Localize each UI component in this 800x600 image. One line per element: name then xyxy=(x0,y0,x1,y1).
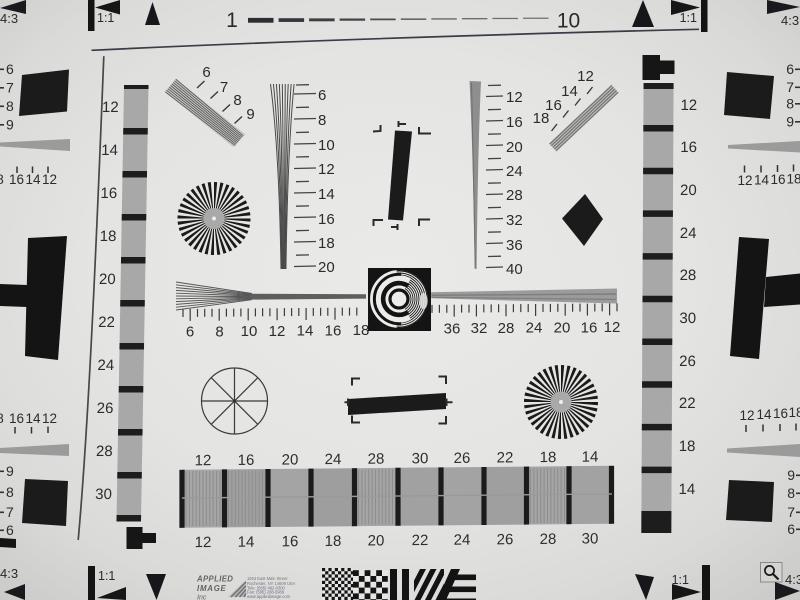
svg-text:IMAGE: IMAGE xyxy=(197,584,227,593)
svg-text:30: 30 xyxy=(582,530,599,547)
svg-text:8: 8 xyxy=(0,411,4,426)
svg-text:1:1: 1:1 xyxy=(97,11,114,25)
svg-text:8: 8 xyxy=(233,92,241,109)
svg-text:24: 24 xyxy=(325,451,342,468)
svg-text:16: 16 xyxy=(770,172,785,187)
svg-text:10: 10 xyxy=(241,323,258,340)
svg-text:16: 16 xyxy=(9,172,24,187)
svg-text:4:3: 4:3 xyxy=(781,13,799,28)
svg-text:12: 12 xyxy=(42,411,57,426)
svg-text:12: 12 xyxy=(739,408,754,423)
svg-text:20: 20 xyxy=(368,532,385,549)
svg-text:1: 1 xyxy=(226,9,238,32)
svg-text:12: 12 xyxy=(318,161,335,178)
svg-text:24: 24 xyxy=(506,163,523,180)
svg-text:6: 6 xyxy=(186,324,194,341)
svg-text:12: 12 xyxy=(577,68,594,85)
svg-text:18: 18 xyxy=(353,322,370,339)
svg-text:18: 18 xyxy=(540,449,557,466)
svg-text:12: 12 xyxy=(604,319,621,336)
svg-text:28: 28 xyxy=(540,531,557,548)
svg-text:16: 16 xyxy=(773,406,788,421)
svg-text:16: 16 xyxy=(506,114,523,131)
svg-text:26: 26 xyxy=(454,450,471,467)
svg-text:10: 10 xyxy=(318,137,335,154)
svg-text:www.appliedimage.com: www.appliedimage.com xyxy=(247,594,291,599)
svg-text:12: 12 xyxy=(269,323,286,340)
svg-text:Inc: Inc xyxy=(197,595,207,600)
svg-text:30: 30 xyxy=(95,486,112,503)
svg-text:6: 6 xyxy=(786,61,794,77)
svg-text:APPLIED: APPLIED xyxy=(196,575,233,584)
svg-text:16: 16 xyxy=(9,411,24,426)
svg-text:6: 6 xyxy=(6,61,14,77)
svg-text:26: 26 xyxy=(679,353,696,370)
svg-text:24: 24 xyxy=(454,532,471,549)
svg-text:6: 6 xyxy=(787,521,795,537)
svg-text:20: 20 xyxy=(554,320,571,337)
svg-text:22: 22 xyxy=(497,449,514,466)
svg-text:9: 9 xyxy=(6,117,14,133)
svg-text:10: 10 xyxy=(557,10,580,33)
svg-text:7: 7 xyxy=(786,79,794,95)
svg-text:6: 6 xyxy=(318,87,326,104)
svg-text:8: 8 xyxy=(318,112,326,129)
svg-text:1:1: 1:1 xyxy=(98,569,115,583)
svg-text:7: 7 xyxy=(6,504,14,520)
svg-text:8: 8 xyxy=(0,172,4,187)
svg-text:28: 28 xyxy=(680,267,697,284)
svg-text:14: 14 xyxy=(318,186,335,203)
svg-text:16: 16 xyxy=(318,211,335,228)
svg-text:4:3: 4:3 xyxy=(0,566,18,581)
svg-text:12: 12 xyxy=(506,89,523,106)
svg-text:14: 14 xyxy=(101,142,118,159)
svg-text:30: 30 xyxy=(412,450,429,467)
svg-text:14: 14 xyxy=(297,323,314,340)
svg-text:18: 18 xyxy=(786,172,800,187)
svg-text:7: 7 xyxy=(787,504,795,520)
svg-text:26: 26 xyxy=(97,400,114,417)
svg-text:12: 12 xyxy=(195,534,212,551)
svg-text:28: 28 xyxy=(96,443,113,460)
svg-text:22: 22 xyxy=(679,395,696,412)
svg-text:7: 7 xyxy=(220,79,228,96)
svg-text:8: 8 xyxy=(786,96,794,112)
svg-text:9: 9 xyxy=(246,106,254,123)
svg-text:16: 16 xyxy=(325,322,342,339)
svg-text:6: 6 xyxy=(202,64,210,81)
svg-text:4:3: 4:3 xyxy=(785,572,800,587)
svg-text:18: 18 xyxy=(788,405,800,420)
svg-text:1:1: 1:1 xyxy=(680,11,697,25)
svg-text:6: 6 xyxy=(6,522,14,538)
svg-text:8: 8 xyxy=(6,484,14,500)
svg-text:16: 16 xyxy=(238,452,255,469)
svg-text:18: 18 xyxy=(325,533,342,550)
svg-text:20: 20 xyxy=(680,182,697,199)
svg-text:18: 18 xyxy=(318,235,335,252)
svg-text:20: 20 xyxy=(506,139,523,156)
svg-text:8: 8 xyxy=(6,98,14,114)
svg-text:16: 16 xyxy=(282,533,299,550)
svg-text:28: 28 xyxy=(506,187,523,204)
svg-text:12: 12 xyxy=(680,97,697,114)
svg-text:22: 22 xyxy=(98,314,115,331)
svg-text:12: 12 xyxy=(42,172,57,187)
svg-text:24: 24 xyxy=(526,320,543,337)
svg-text:26: 26 xyxy=(497,531,514,548)
svg-text:24: 24 xyxy=(680,225,697,242)
svg-text:16: 16 xyxy=(100,185,117,202)
svg-text:30: 30 xyxy=(679,310,696,327)
svg-text:14: 14 xyxy=(561,83,578,100)
svg-text:14: 14 xyxy=(25,172,41,187)
svg-text:18: 18 xyxy=(533,110,550,127)
svg-text:20: 20 xyxy=(99,271,116,288)
svg-text:32: 32 xyxy=(506,212,523,229)
svg-text:36: 36 xyxy=(506,237,523,254)
svg-text:28: 28 xyxy=(368,451,385,468)
svg-text:14: 14 xyxy=(754,173,770,188)
svg-text:24: 24 xyxy=(97,357,114,374)
svg-text:12: 12 xyxy=(102,99,119,116)
svg-text:14: 14 xyxy=(582,449,599,466)
svg-text:7: 7 xyxy=(6,80,14,96)
svg-text:20: 20 xyxy=(282,451,299,468)
svg-text:18: 18 xyxy=(100,228,117,245)
svg-text:14: 14 xyxy=(678,481,695,498)
svg-text:14: 14 xyxy=(25,411,41,426)
svg-text:12: 12 xyxy=(195,452,212,469)
svg-text:20: 20 xyxy=(318,259,335,276)
svg-text:40: 40 xyxy=(506,261,523,278)
svg-text:36: 36 xyxy=(444,320,461,337)
svg-text:9: 9 xyxy=(786,114,794,130)
svg-text:16: 16 xyxy=(581,319,598,336)
svg-text:8: 8 xyxy=(787,485,795,501)
svg-text:14: 14 xyxy=(756,407,772,422)
svg-text:9: 9 xyxy=(787,467,795,483)
svg-text:28: 28 xyxy=(498,320,515,337)
svg-text:32: 32 xyxy=(471,320,488,337)
svg-text:22: 22 xyxy=(412,532,429,549)
svg-text:8: 8 xyxy=(215,323,223,340)
svg-text:4:3: 4:3 xyxy=(0,11,18,26)
svg-text:12: 12 xyxy=(737,173,752,188)
svg-text:9: 9 xyxy=(6,463,14,479)
svg-text:18: 18 xyxy=(679,438,696,455)
svg-text:14: 14 xyxy=(238,534,255,551)
svg-text:16: 16 xyxy=(680,139,697,156)
